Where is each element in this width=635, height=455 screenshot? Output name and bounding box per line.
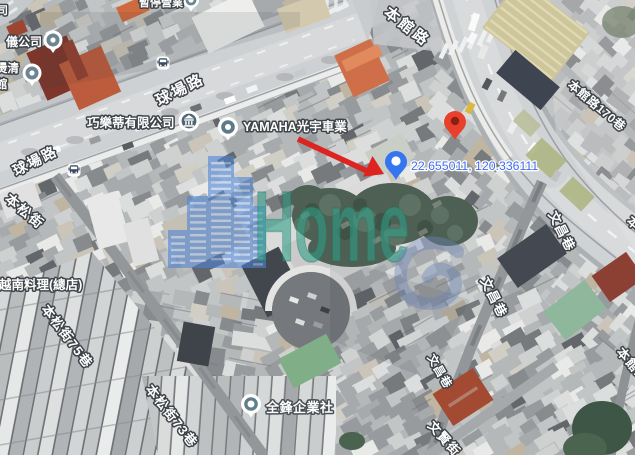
svg-text:Home: Home [254,172,410,283]
svg-text:全鋒企業社: 全鋒企業社 [265,400,334,415]
svg-text:22.655011, 120.336111: 22.655011, 120.336111 [411,159,538,173]
svg-text:巧樂蒂有限公司: 巧樂蒂有限公司 [87,115,175,130]
svg-text:YAMAHA光宇車業: YAMAHA光宇車業 [243,119,347,134]
svg-text:燙清: 燙清 [0,61,19,75]
svg-text:司: 司 [0,4,8,17]
svg-text:儀公司: 儀公司 [5,34,42,49]
svg-text:暫停營業: 暫停營業 [139,0,184,9]
svg-text:越南料理(總店): 越南料理(總店) [0,277,82,292]
svg-text:館: 館 [0,77,8,91]
